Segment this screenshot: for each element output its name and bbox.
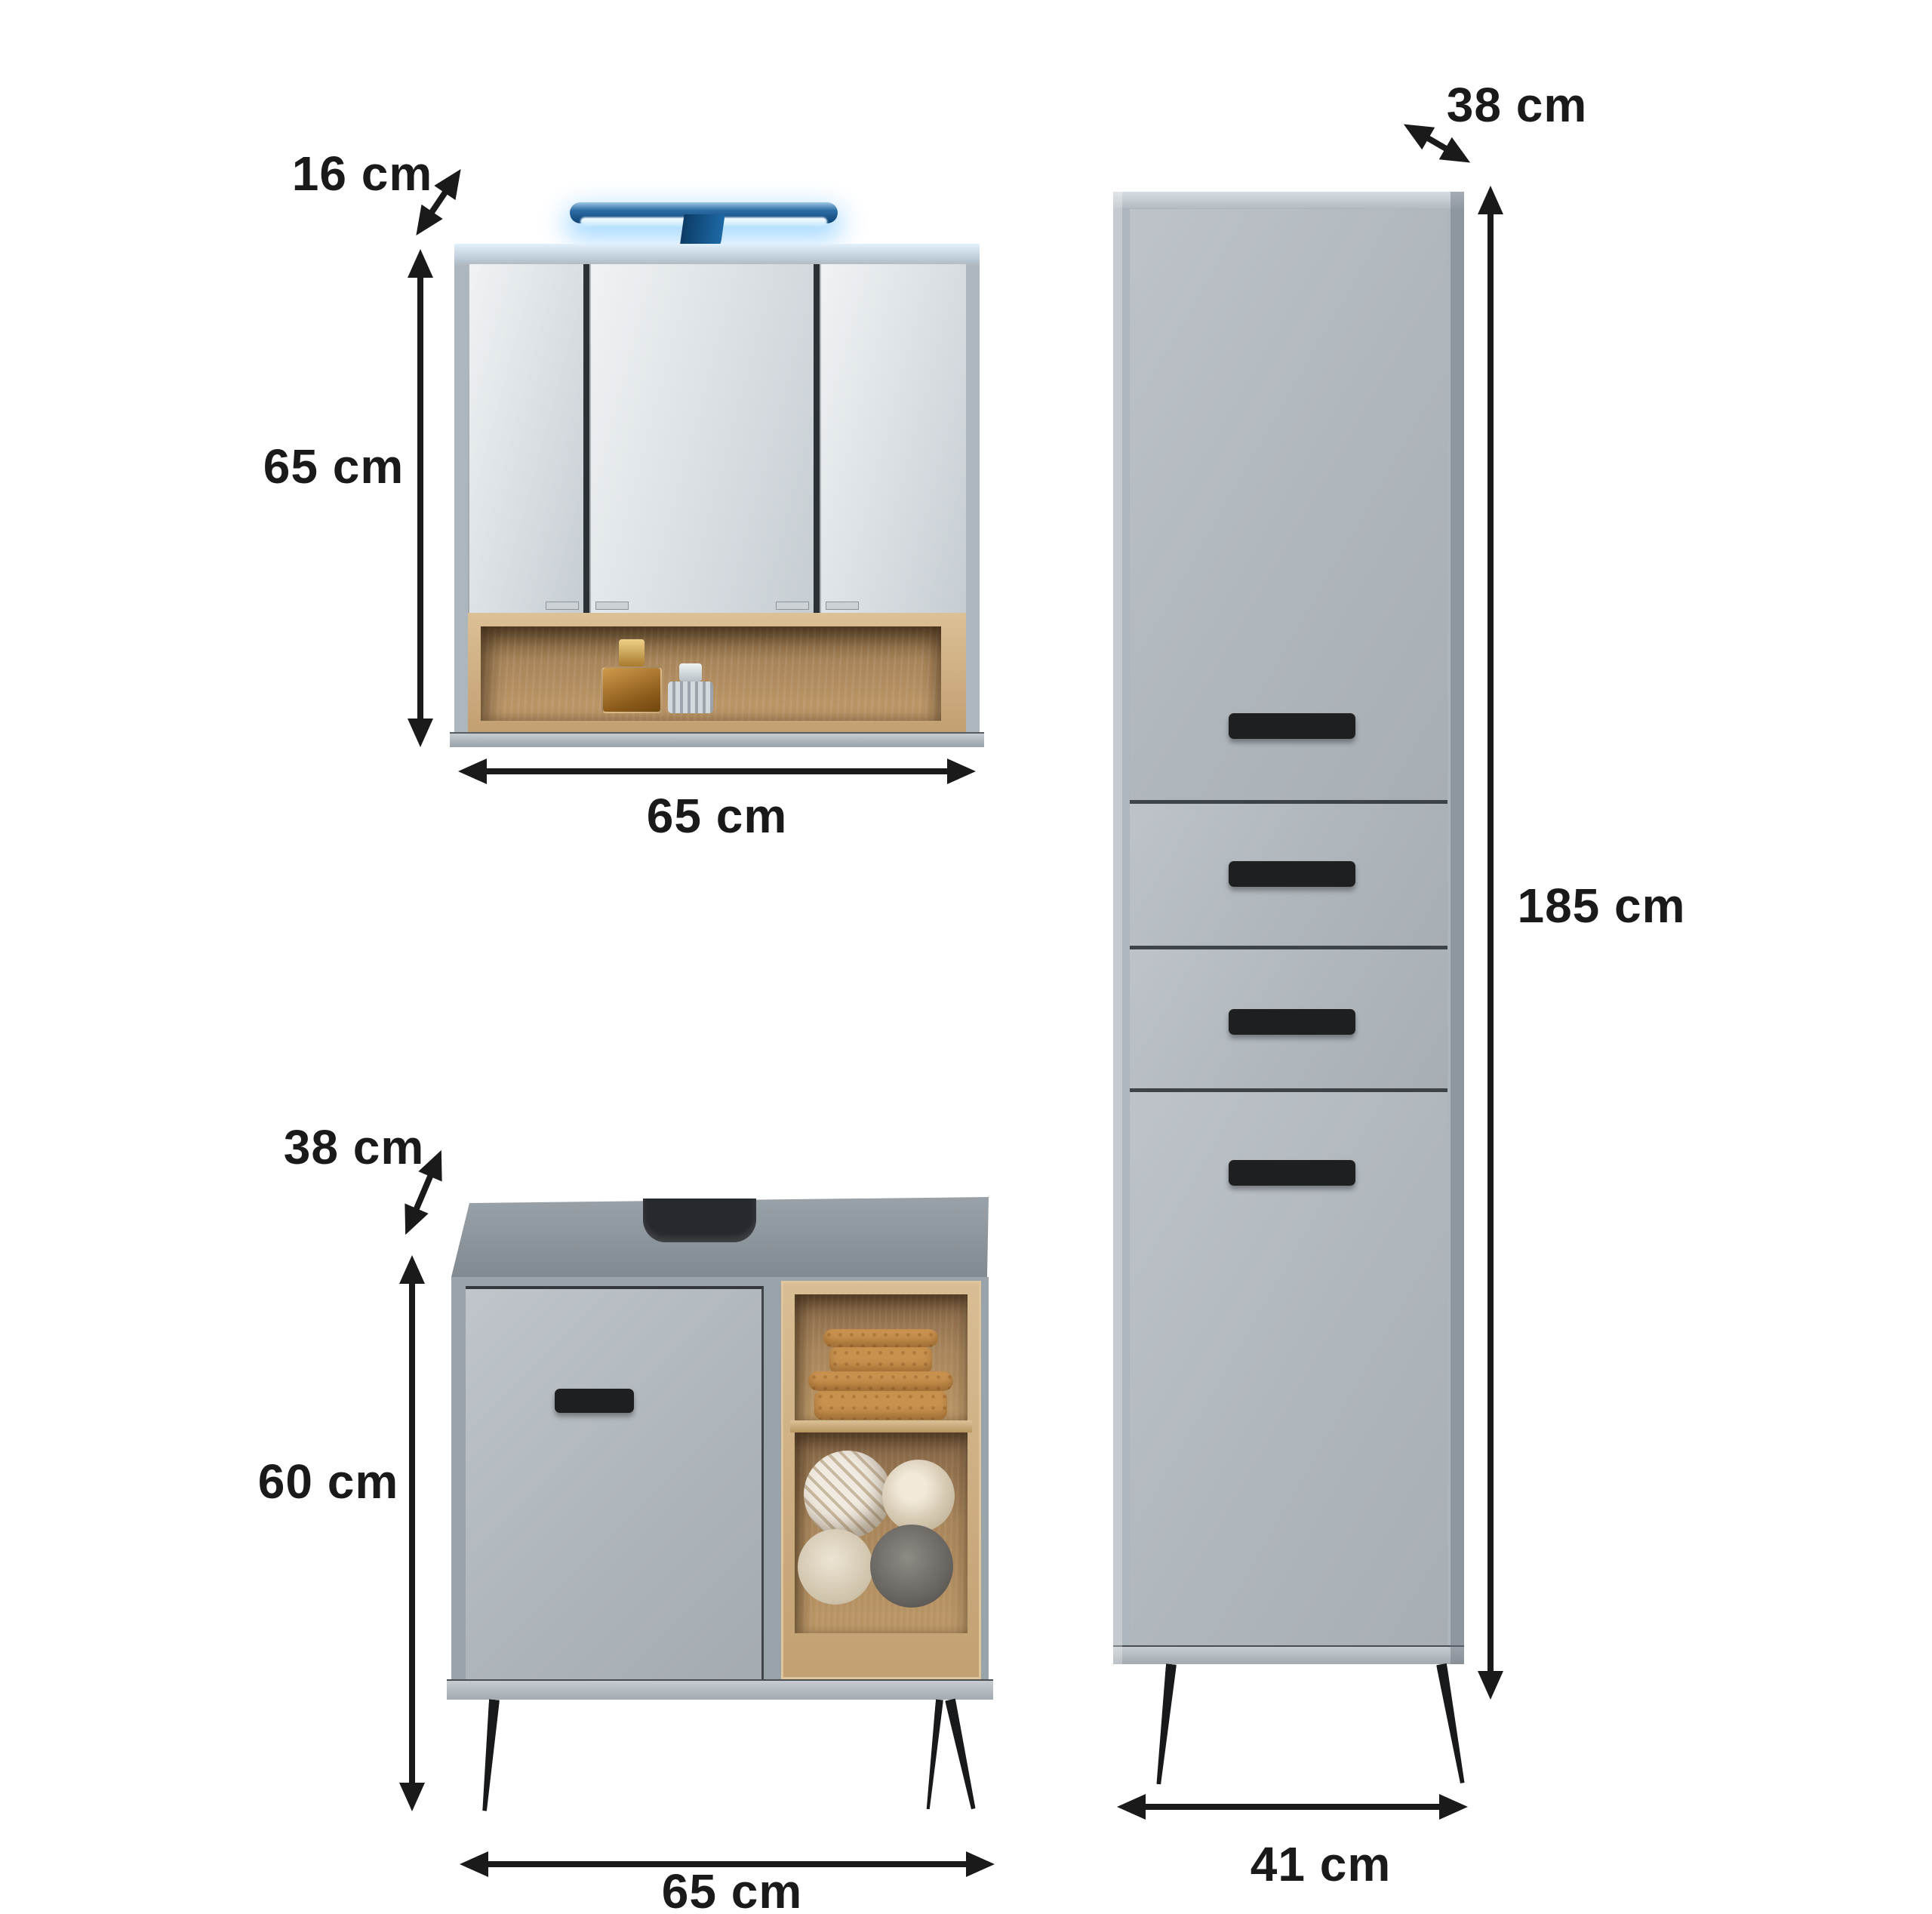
cork-box: [829, 1347, 932, 1373]
open-shelf-cavity: [481, 626, 941, 721]
perfume-bottle-amber: [601, 666, 662, 713]
vanity-cabinet: [447, 1197, 995, 1811]
cabinet-bottom-ledge: [450, 732, 984, 747]
mirror-height-arrow: [408, 249, 433, 747]
vanity-height-label: 60 cm: [258, 1454, 398, 1509]
drawer-handle: [1229, 861, 1355, 887]
tall-depth-label: 38 cm: [1447, 77, 1587, 133]
cabinet-leg: [924, 1699, 943, 1809]
shelf-cavity-top: [795, 1294, 968, 1420]
tall-cabinet: [1113, 192, 1464, 1785]
mirror-width-arrow: [458, 759, 976, 784]
sink-pipe-cutout: [643, 1199, 756, 1242]
open-shelf: [468, 613, 966, 732]
mirror-door-right: [820, 264, 966, 613]
towel-roll-beige: [882, 1460, 955, 1532]
towel-roll-light: [798, 1529, 873, 1605]
perfume-bottle-silver: [668, 682, 713, 713]
towel-roll-gray: [870, 1525, 953, 1608]
tall-width-label: 41 cm: [1251, 1836, 1391, 1892]
hinge-icon: [776, 602, 809, 610]
vanity-depth-label: 38 cm: [284, 1119, 424, 1175]
cabinet-top-edge: [1113, 192, 1464, 208]
mirror-width-label: 65 cm: [647, 788, 787, 844]
bathroom-furniture-dimensions-diagram: 16 cm 65 cm 65 cm 38 cm 185 cm 41 cm: [0, 0, 1932, 1914]
tall-cabinet-body: [1113, 192, 1464, 1664]
mirror-door-center: [589, 264, 814, 613]
perfume-bottle-cap: [619, 639, 645, 666]
vanity-height-arrow: [399, 1255, 425, 1811]
mirror-door-left: [468, 264, 583, 613]
cork-box-lid: [823, 1329, 938, 1347]
cork-box-lid: [808, 1371, 953, 1391]
mirror-height-label: 65 cm: [263, 438, 404, 494]
door-handle: [1229, 1160, 1355, 1186]
door-handle: [555, 1389, 634, 1413]
cabinet-bottom-ledge: [1113, 1645, 1464, 1664]
towel-roll-patterned: [804, 1451, 891, 1538]
cabinet-leg: [1153, 1663, 1177, 1785]
mirror-doors-row: [468, 264, 966, 613]
hinge-icon: [546, 602, 579, 610]
tall-width-arrow: [1117, 1794, 1468, 1820]
cork-box: [814, 1391, 947, 1420]
tall-cabinet-top-door: [1130, 209, 1447, 800]
side-shadow: [1451, 192, 1464, 1664]
mirror-cabinet-body: [454, 244, 980, 747]
perfume-bottle-cap: [679, 663, 702, 682]
shelf-divider: [790, 1420, 972, 1432]
mirror-depth-label: 16 cm: [292, 146, 432, 202]
hinge-icon: [826, 602, 859, 610]
cabinet-leg: [1436, 1663, 1468, 1784]
cabinet-leg: [945, 1699, 978, 1811]
cabinet-leg: [479, 1699, 500, 1811]
mirror-cabinet: [454, 202, 980, 747]
vanity-door: [466, 1286, 764, 1679]
vanity-width-arrow: [460, 1851, 995, 1877]
side-highlight: [1113, 192, 1122, 1664]
tall-height-arrow: [1478, 186, 1503, 1700]
vanity-open-shelf: [781, 1281, 981, 1679]
vanity-front: [451, 1277, 989, 1700]
tall-height-label: 185 cm: [1517, 878, 1685, 934]
hinge-icon: [595, 602, 629, 610]
cabinet-bottom-ledge: [447, 1679, 993, 1700]
shelf-cavity-bottom: [795, 1432, 968, 1633]
cabinet-top-edge: [454, 244, 980, 266]
door-handle: [1229, 713, 1355, 739]
drawer-handle: [1229, 1009, 1355, 1035]
